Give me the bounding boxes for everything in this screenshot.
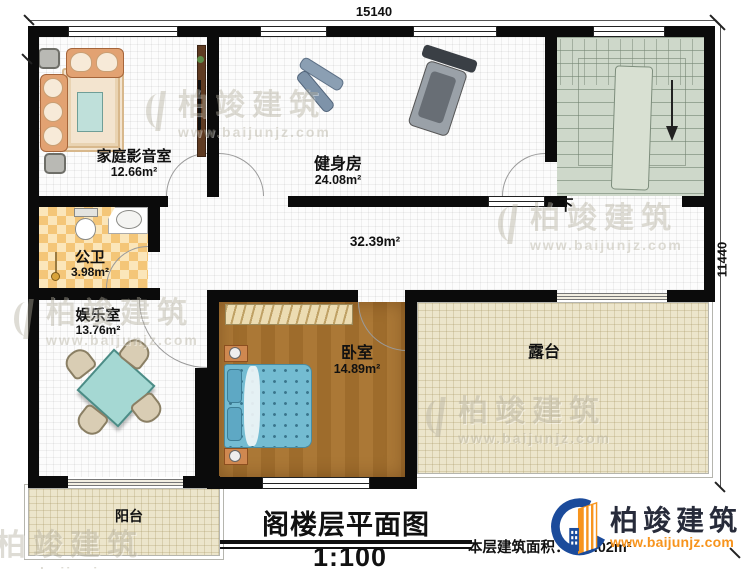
- sofa-cushion: [43, 126, 63, 146]
- lamp-icon: [229, 347, 241, 359]
- room-area-recreation: 13.76m²: [38, 324, 158, 337]
- room-label-balcony: 阳台: [69, 509, 189, 524]
- dimension-line-top: [28, 20, 716, 21]
- title-underline-thick: [220, 540, 472, 544]
- room-label-bedroom: 卧室: [297, 345, 417, 363]
- sheet-fold: [244, 366, 260, 446]
- room-area-bedroom: 14.89m²: [297, 363, 417, 377]
- pillow: [227, 407, 242, 441]
- sofa-cushion: [43, 102, 63, 122]
- window: [260, 26, 327, 37]
- room-area-gym: 24.08m²: [278, 174, 398, 188]
- wall-segment: [28, 288, 160, 300]
- wall-segment: [667, 290, 715, 302]
- room-label-home-theater: 家庭影音室: [74, 149, 194, 166]
- balcony-sliding-door: [68, 479, 183, 486]
- window: [593, 26, 665, 37]
- window: [413, 26, 497, 37]
- speaker: [44, 153, 66, 174]
- terrace-floor: [417, 302, 709, 474]
- sofa-cushion: [96, 52, 118, 72]
- wall-segment: [370, 477, 417, 489]
- coffee-table: [77, 92, 103, 132]
- wall-right: [704, 26, 715, 302]
- room-label-terrace: 露台: [484, 344, 604, 362]
- wardrobe: [225, 304, 353, 325]
- wall-segment: [207, 290, 219, 489]
- stair-down-arrow-icon: [666, 126, 678, 141]
- wall-segment: [545, 37, 557, 162]
- wall-segment: [28, 476, 68, 488]
- tv-icon: [198, 80, 201, 130]
- plan-title-text: 阁楼层平面图: [262, 510, 430, 540]
- wall-segment: [195, 368, 207, 478]
- title-underline-thin: [220, 547, 472, 549]
- wall-segment: [207, 37, 219, 197]
- sofa-cushion: [43, 78, 63, 98]
- wall-segment: [417, 290, 557, 302]
- pillow: [227, 369, 242, 403]
- brand-site: www.baijunjz.com: [610, 534, 734, 550]
- room-label-gym: 健身房: [278, 156, 398, 174]
- toilet-tank: [74, 208, 98, 217]
- dimension-top: 15140: [342, 4, 406, 19]
- sink-icon: [116, 210, 142, 229]
- floor-plan: 下: [0, 0, 750, 569]
- stair-landing: [611, 65, 653, 190]
- speaker: [38, 48, 60, 69]
- room-area-home-theater: 12.66m²: [74, 166, 194, 180]
- terrace-sliding-door: [557, 293, 667, 300]
- wall-segment: [207, 290, 358, 302]
- dimension-right: 11440: [715, 228, 730, 292]
- wall-segment: [682, 196, 704, 207]
- brand-logo-icon: [549, 497, 605, 557]
- plan-title: 阁楼层平面图 1:100: [218, 503, 474, 569]
- sofa-cushion: [70, 52, 92, 72]
- wall-segment: [497, 26, 593, 37]
- wall-segment: [405, 290, 417, 489]
- wall-segment: [178, 26, 260, 37]
- wall-segment: [28, 196, 168, 207]
- wall-segment: [148, 207, 160, 252]
- brand-name: 柏竣建筑: [610, 499, 742, 539]
- wall-segment: [207, 477, 262, 489]
- window: [262, 477, 370, 489]
- stair-down-label: 下: [516, 198, 616, 215]
- toilet-icon: [75, 218, 96, 240]
- window: [68, 26, 178, 37]
- wall-segment: [327, 26, 413, 37]
- room-area-hall: 32.39m²: [315, 235, 435, 250]
- plant-icon: [197, 56, 204, 63]
- lamp-icon: [229, 450, 241, 462]
- room-area-bathroom: 3.98m²: [30, 266, 150, 279]
- stair-arrow-stem: [671, 80, 673, 128]
